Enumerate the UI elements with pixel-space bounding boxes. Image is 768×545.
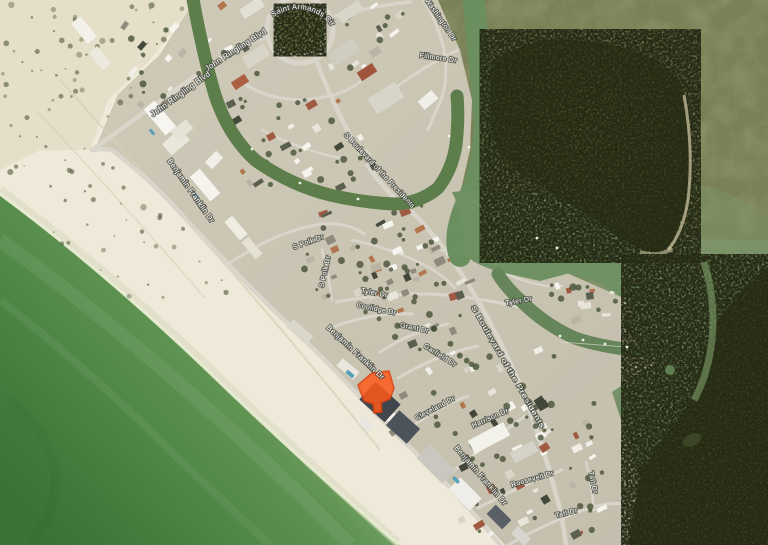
dune-scrub — [3, 40, 9, 46]
tree — [613, 299, 618, 304]
dune-scrub — [83, 147, 85, 149]
dune-scrub — [53, 231, 55, 233]
tree — [397, 232, 402, 237]
dune-scrub — [126, 219, 128, 221]
dune-scrub — [107, 115, 110, 118]
dune-scrub — [70, 95, 73, 98]
dune-scrub — [101, 162, 105, 166]
dune-scrub — [9, 124, 12, 127]
tree — [591, 401, 596, 406]
tree — [141, 53, 145, 57]
dune-scrub — [40, 69, 42, 71]
dune-scrub — [36, 136, 38, 138]
tree — [303, 98, 307, 102]
dune-scrub — [35, 49, 40, 54]
tree — [552, 354, 557, 359]
dune-scrub — [31, 16, 34, 19]
tree — [422, 243, 428, 249]
dune-scrub — [111, 166, 115, 170]
tree — [315, 288, 318, 291]
tree — [347, 64, 354, 71]
dune-scrub — [99, 38, 105, 44]
tree — [434, 415, 439, 420]
tree — [494, 453, 500, 459]
tree — [345, 23, 349, 27]
dune-scrub — [66, 241, 70, 245]
dune-scrub — [52, 99, 55, 102]
tree — [412, 294, 417, 299]
tree — [547, 401, 554, 408]
dune-scrub — [143, 241, 145, 243]
dune-scrub — [58, 94, 63, 99]
tree — [356, 245, 360, 249]
dune-scrub — [148, 2, 154, 8]
tree — [600, 470, 604, 474]
tree — [385, 14, 391, 20]
building — [602, 313, 610, 317]
tree — [441, 281, 446, 286]
dune-scrub — [172, 245, 177, 250]
tree — [577, 503, 583, 509]
tree — [525, 415, 528, 418]
dune-scrub — [117, 99, 123, 105]
satellite-map[interactable]: Saint Armands CirJohn Ringling BlvdJohn … — [0, 0, 768, 545]
dune-scrub — [76, 52, 82, 58]
tree — [431, 326, 437, 332]
tree — [558, 295, 564, 301]
map-viewport[interactable]: Saint Armands CirJohn Ringling BlvdJohn … — [0, 0, 768, 545]
tree — [472, 363, 479, 370]
boat — [448, 135, 451, 138]
dune-scrub — [60, 241, 64, 245]
dune-scrub — [135, 9, 138, 12]
tree — [542, 428, 546, 432]
dune-scrub — [154, 244, 159, 249]
dune-scrub — [121, 185, 125, 189]
tree — [371, 238, 378, 245]
tree — [533, 516, 537, 520]
tree — [142, 91, 145, 94]
dune-scrub — [3, 94, 7, 98]
dune-scrub — [75, 70, 79, 74]
dune-scrub — [161, 37, 167, 43]
boat — [536, 237, 539, 240]
tree — [453, 431, 458, 436]
tree — [550, 283, 554, 287]
dune-scrub — [13, 50, 16, 53]
tree — [268, 182, 273, 187]
tree — [426, 311, 433, 318]
dune-scrub — [64, 159, 66, 161]
tree — [402, 238, 406, 242]
boat — [556, 247, 559, 250]
boat — [357, 198, 360, 201]
dune-scrub — [53, 15, 57, 19]
tree — [383, 260, 390, 267]
boat — [299, 182, 302, 185]
building — [589, 289, 595, 293]
dune-scrub — [68, 43, 73, 48]
tree — [163, 27, 168, 32]
tree — [265, 151, 271, 157]
tree — [254, 71, 260, 77]
tree — [238, 97, 242, 101]
tree — [317, 176, 324, 183]
dune-scrub — [156, 43, 158, 45]
tree — [244, 100, 247, 103]
building — [586, 292, 594, 300]
dune-scrub — [100, 269, 102, 271]
boat — [582, 339, 585, 342]
tree — [140, 80, 147, 87]
tree — [392, 334, 398, 340]
tree — [338, 257, 345, 264]
dune-scrub — [181, 227, 185, 231]
boat — [251, 148, 254, 151]
tree — [448, 341, 454, 347]
dune-scrub — [86, 223, 88, 225]
tree — [301, 266, 308, 273]
dune-scrub — [120, 202, 122, 204]
tree — [514, 422, 519, 427]
tree — [464, 358, 470, 364]
dune-scrub — [179, 6, 184, 11]
tree — [326, 294, 330, 298]
tree — [128, 35, 135, 42]
tree — [551, 428, 554, 431]
boat — [468, 146, 471, 149]
tree — [569, 467, 572, 470]
dune-scrub — [127, 294, 132, 299]
dune-scrub — [101, 248, 106, 253]
tree — [480, 462, 485, 467]
tree — [261, 138, 265, 142]
dune-scrub — [117, 275, 119, 277]
tree — [589, 527, 595, 533]
dune-scrub — [53, 30, 55, 32]
dune-scrub — [48, 108, 51, 111]
dune-scrub — [152, 21, 154, 23]
dune-scrub — [55, 74, 58, 77]
boat — [604, 343, 607, 346]
dune-scrub — [73, 78, 77, 82]
dune-scrub — [31, 70, 33, 72]
dune-scrub — [84, 190, 86, 192]
dune-scrub — [223, 290, 228, 295]
dune-scrub — [80, 87, 85, 92]
dune-scrub — [1, 72, 5, 76]
tree — [295, 100, 300, 105]
tree — [538, 435, 544, 441]
tree — [434, 421, 441, 428]
tree — [586, 423, 592, 429]
tree — [411, 299, 417, 305]
dune-scrub — [161, 296, 164, 299]
tree — [348, 170, 354, 176]
dune-scrub — [140, 229, 144, 233]
tree — [240, 105, 245, 110]
tree — [139, 70, 144, 75]
tree — [389, 267, 393, 271]
dune-scrub — [67, 168, 72, 173]
tree — [507, 417, 514, 424]
tree — [586, 285, 590, 289]
tree — [486, 353, 492, 359]
tree — [377, 316, 382, 321]
dune-scrub — [85, 53, 87, 55]
tree — [478, 529, 482, 533]
dune-scrub — [49, 185, 52, 188]
dune-scrub — [14, 165, 18, 169]
tree — [351, 176, 356, 181]
dune-scrub — [7, 169, 13, 175]
dune-scrub — [221, 279, 223, 281]
tree — [549, 292, 554, 297]
boat — [626, 346, 629, 349]
tree — [434, 282, 439, 287]
tree — [458, 314, 461, 317]
dune-scrub — [51, 7, 56, 12]
tree — [276, 102, 282, 108]
dune-scrub — [140, 204, 146, 210]
building — [580, 302, 591, 309]
tree — [500, 456, 506, 462]
marsh-pond — [665, 365, 675, 375]
dune-scrub — [130, 87, 132, 89]
dune-scrub — [21, 61, 23, 63]
dune-scrub — [44, 145, 47, 148]
tree — [589, 435, 593, 439]
dune-scrub — [19, 135, 21, 137]
tree — [416, 263, 419, 266]
tree — [362, 276, 368, 282]
tree — [429, 239, 435, 245]
tree — [587, 503, 594, 510]
tree — [299, 149, 302, 152]
dune-scrub — [110, 38, 115, 43]
dune-scrub — [127, 77, 131, 81]
tree — [340, 156, 347, 163]
dune-scrub — [59, 38, 65, 44]
dune-scrub — [157, 215, 162, 220]
dune-scrub — [113, 235, 115, 237]
tree — [306, 253, 309, 256]
tree — [335, 160, 339, 164]
tree — [276, 116, 280, 120]
dune-scrub — [91, 197, 96, 202]
dune-scrub — [73, 89, 78, 94]
dune-scrub — [205, 281, 208, 284]
tree — [290, 150, 296, 156]
tree — [569, 283, 576, 290]
tree — [328, 117, 335, 124]
tree — [383, 23, 388, 28]
tree — [401, 12, 405, 16]
dune-scrub — [24, 115, 29, 120]
dune-scrub — [129, 4, 134, 9]
dune-scrub — [23, 165, 25, 167]
dune-scrub — [147, 283, 149, 285]
boat — [559, 335, 562, 338]
dune-scrub — [65, 68, 67, 70]
dune-scrub — [88, 184, 92, 188]
tree — [596, 307, 601, 312]
tree — [377, 37, 384, 44]
dune-scrub — [8, 2, 14, 8]
tree — [402, 227, 406, 231]
tree — [457, 353, 463, 359]
dune-scrub — [63, 199, 66, 202]
dune-scrub — [3, 82, 8, 87]
tree — [358, 271, 361, 274]
dune-scrub — [198, 260, 200, 262]
tree — [418, 347, 422, 351]
tree — [431, 390, 437, 396]
tree — [356, 261, 363, 268]
tree — [391, 210, 397, 216]
tree — [402, 264, 408, 270]
tree — [320, 225, 326, 231]
tree — [385, 286, 389, 290]
dune-scrub — [129, 94, 134, 99]
